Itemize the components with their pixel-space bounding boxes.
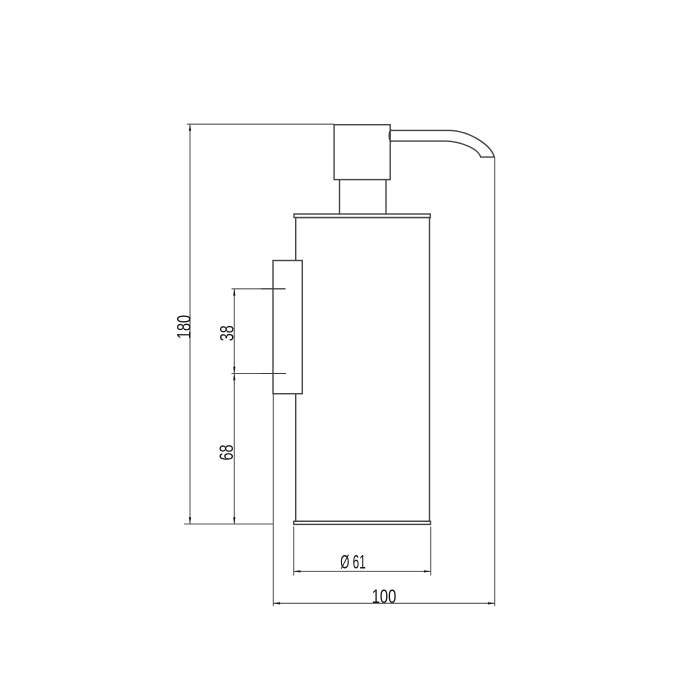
svg-text:Ø 61: Ø 61 (340, 553, 366, 574)
svg-text:180: 180 (174, 315, 195, 339)
svg-text:100: 100 (372, 587, 397, 608)
svg-text:68: 68 (217, 445, 238, 461)
svg-text:38: 38 (217, 325, 238, 341)
